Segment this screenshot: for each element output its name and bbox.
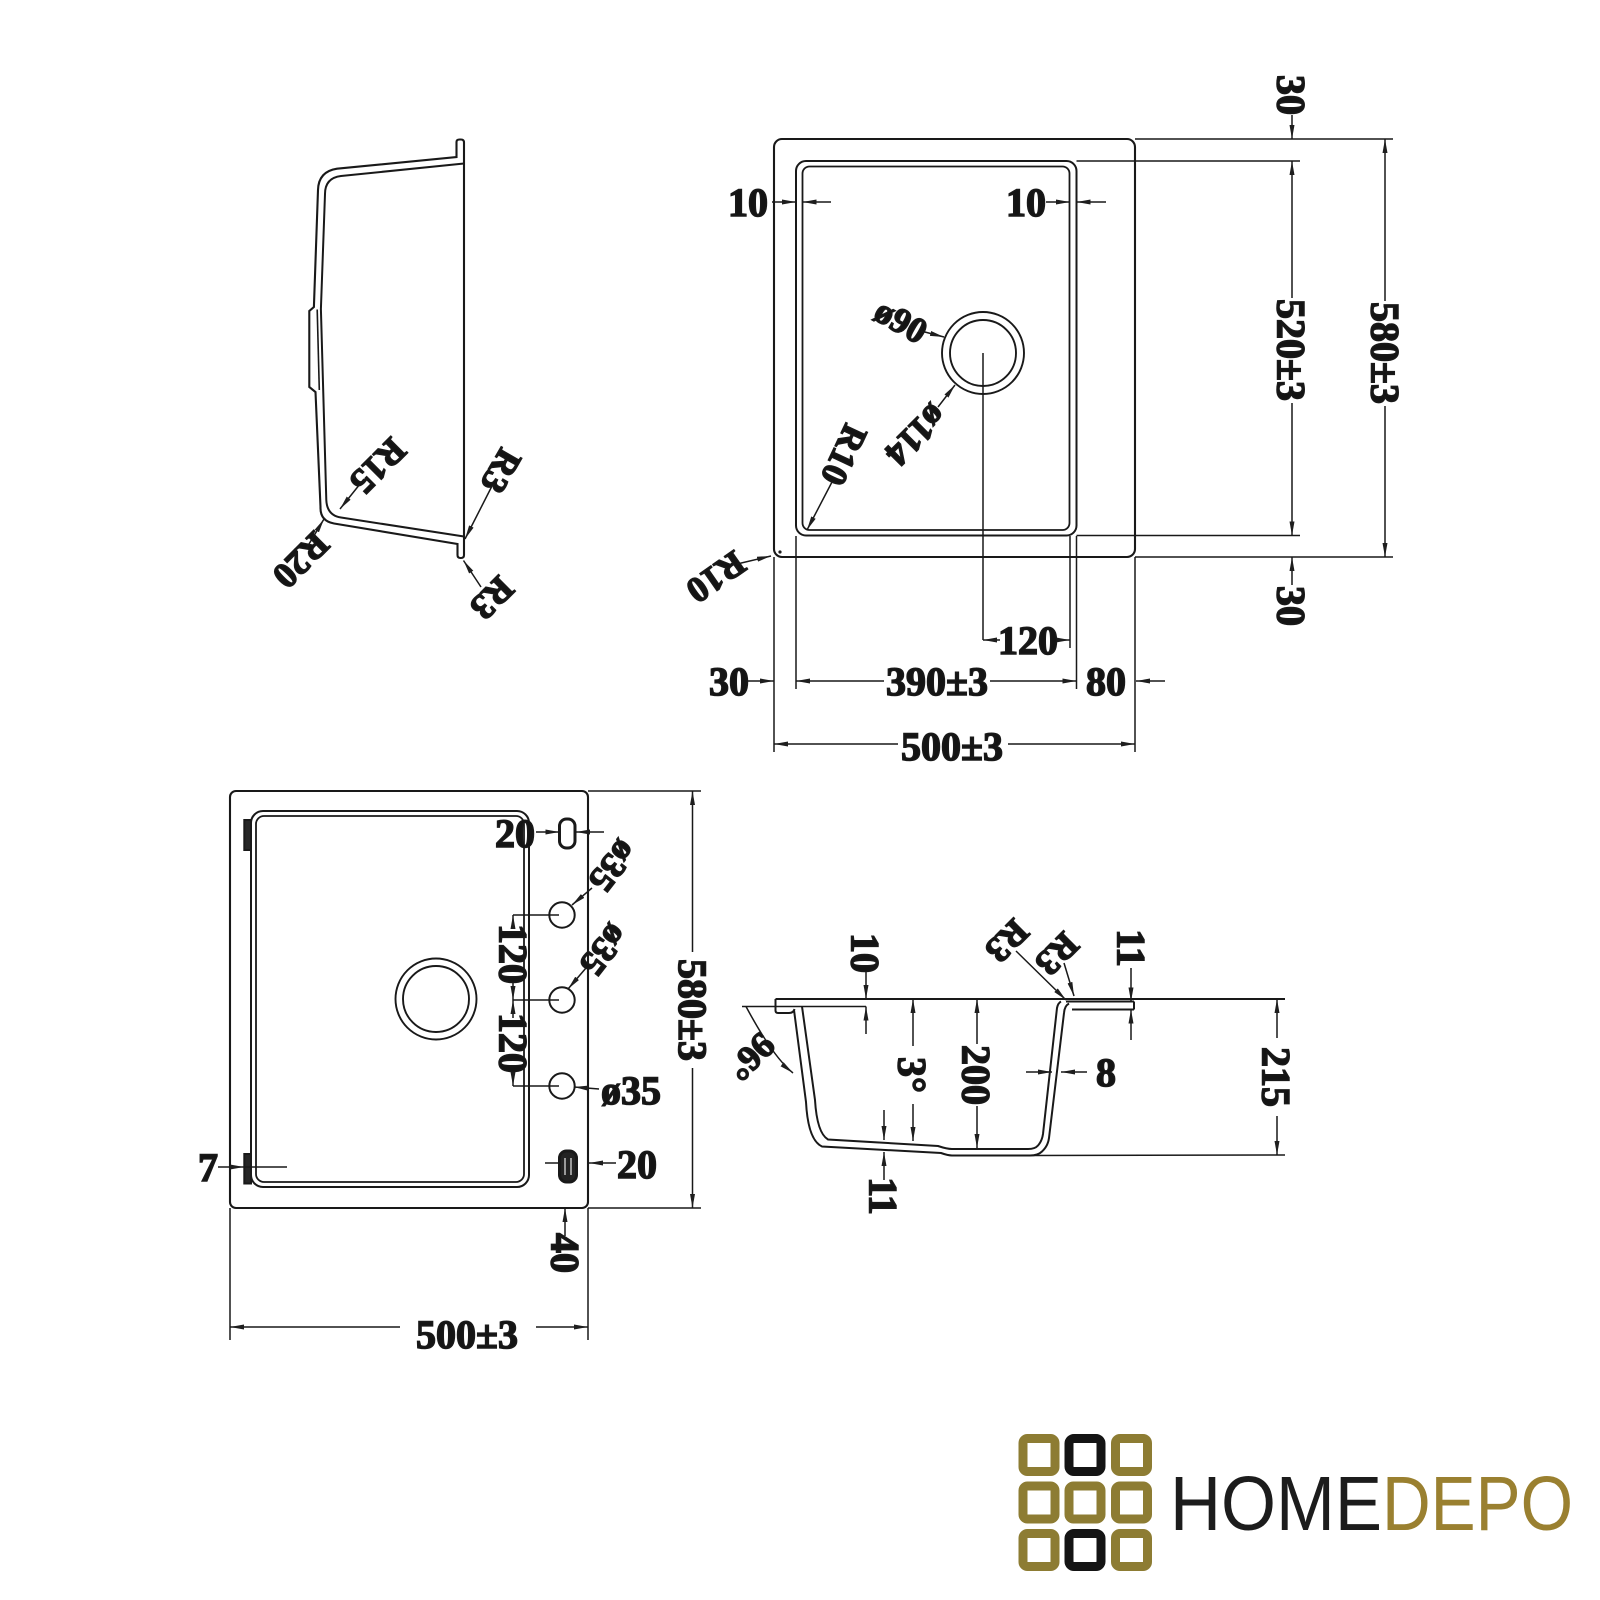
svg-text:120: 120 [491,924,536,984]
svg-text:80: 80 [1086,659,1126,704]
svg-text:10: 10 [843,933,888,973]
svg-text:R15: R15 [342,430,414,502]
svg-text:390±3: 390±3 [886,659,988,704]
svg-text:20: 20 [617,1142,657,1187]
svg-text:215: 215 [1254,1047,1299,1107]
svg-text:40: 40 [543,1233,588,1273]
svg-text:11: 11 [861,1177,906,1215]
svg-text:580±3: 580±3 [1363,302,1408,404]
svg-text:R3: R3 [462,568,521,627]
svg-text:7: 7 [198,1145,218,1190]
svg-text:10: 10 [728,180,768,225]
svg-text:30: 30 [1269,75,1314,115]
svg-text:HOME: HOME [1170,1461,1382,1547]
svg-text:8: 8 [1096,1050,1116,1095]
svg-text:ø114: ø114 [877,396,955,474]
svg-text:R3: R3 [473,442,530,500]
svg-text:30: 30 [709,659,749,704]
svg-text:ø90: ø90 [868,290,935,352]
svg-text:R10: R10 [813,418,875,491]
svg-text:500±3: 500±3 [901,724,1003,769]
svg-text:10: 10 [1006,180,1046,225]
svg-text:580±3: 580±3 [670,959,715,1061]
svg-text:3°: 3° [890,1057,935,1093]
svg-text:30: 30 [1269,586,1314,626]
svg-text:R20: R20 [265,524,337,596]
svg-text:120: 120 [998,618,1058,663]
svg-text:500±3: 500±3 [416,1312,518,1357]
svg-text:96°: 96° [719,1025,783,1089]
svg-text:R10: R10 [679,543,753,611]
svg-text:R3: R3 [1027,924,1086,983]
svg-text:120: 120 [491,1013,536,1073]
svg-text:DEPO: DEPO [1382,1461,1573,1547]
svg-text:20: 20 [495,811,535,856]
svg-text:520±3: 520±3 [1269,299,1314,401]
svg-text:200: 200 [954,1045,999,1105]
svg-text:ø35: ø35 [601,1068,661,1113]
svg-text:11: 11 [1109,929,1154,967]
